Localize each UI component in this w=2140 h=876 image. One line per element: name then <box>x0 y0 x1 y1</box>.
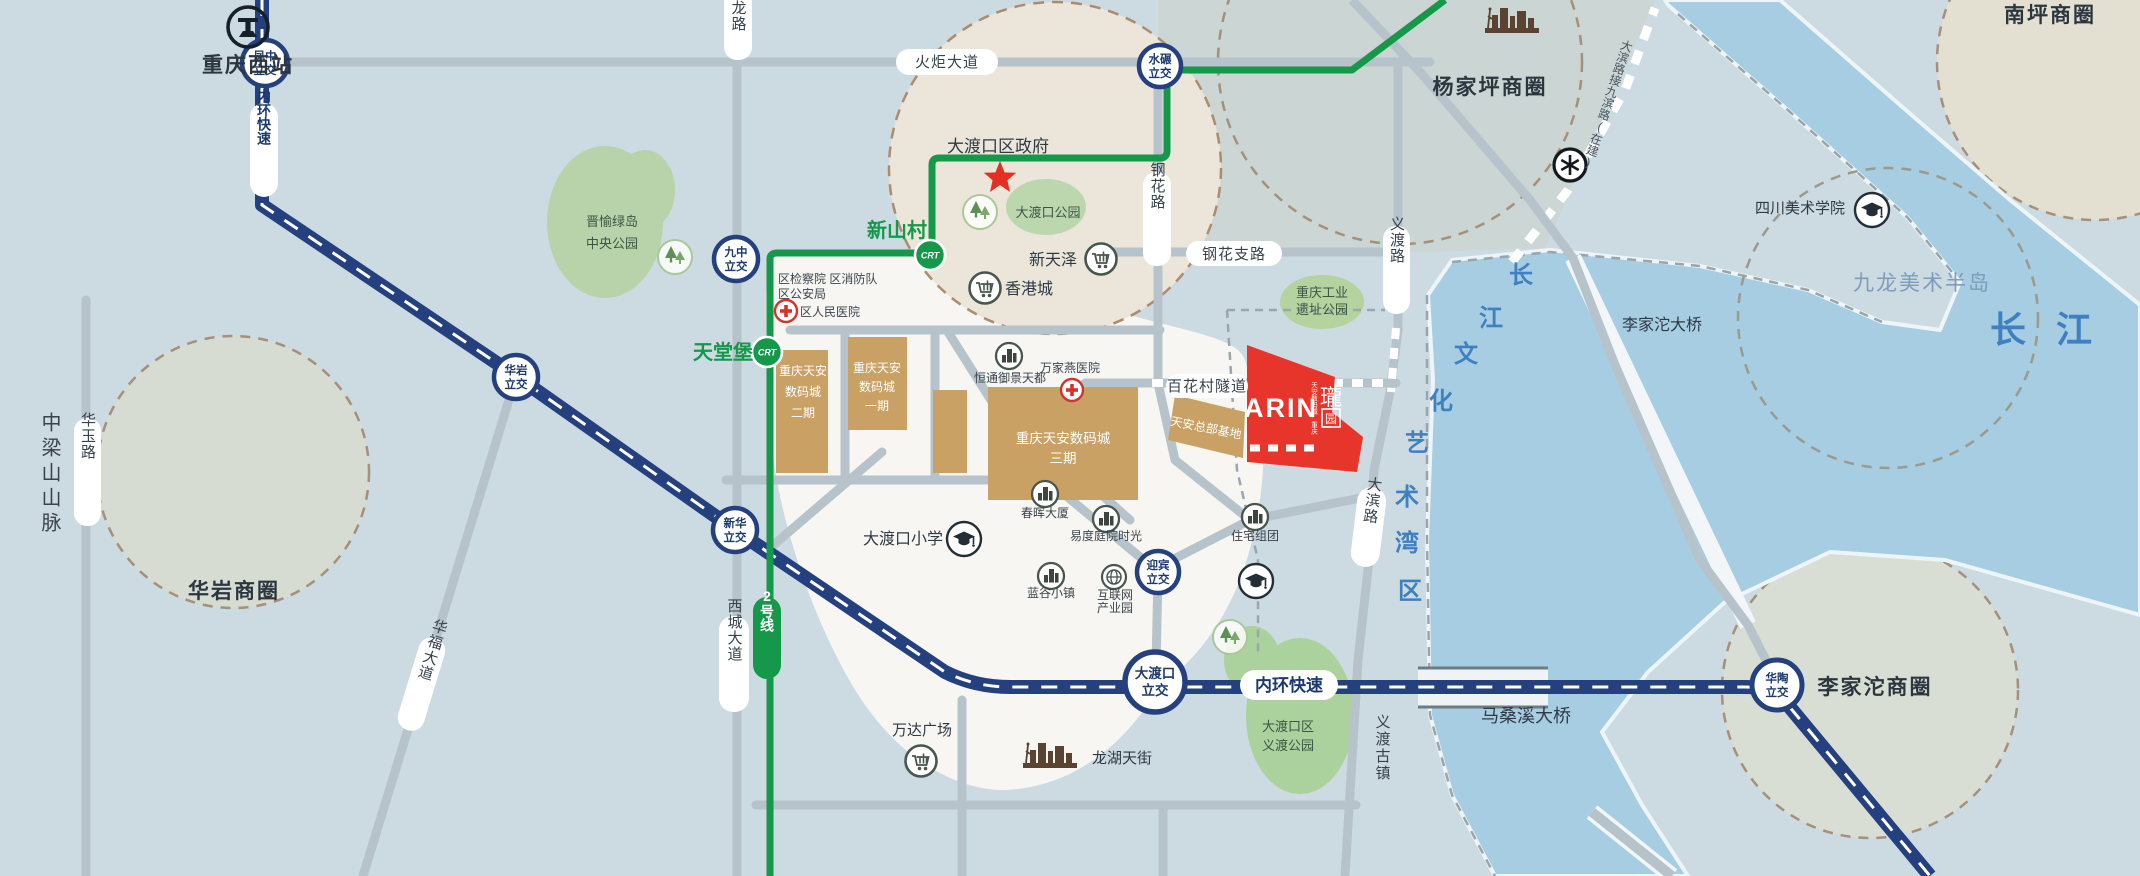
people-hospital-icon <box>775 300 797 322</box>
line2-badge-label: 2号线 <box>759 588 775 633</box>
svg-text:新华: 新华 <box>724 516 747 530</box>
svg-text:江: 江 <box>1479 305 1503 332</box>
wanjiayan-label: 万家燕医院 <box>1040 360 1100 375</box>
ganghua-branch-label: 钢花支路 <box>1202 246 1266 263</box>
hongkongcity-label: 香港城 <box>1005 280 1053 298</box>
yidu-ancient-town-label: 义渡古镇 <box>1374 714 1391 782</box>
sichuan-academy-label: 四川美术学院 <box>1755 199 1845 217</box>
wanjiayan-icon <box>1061 379 1083 401</box>
public-security-label: 区公安局 <box>778 286 826 301</box>
phase3-l1: 重庆天安数码城 <box>1016 431 1111 446</box>
jinyu-l1: 晋愉绿岛 <box>586 214 638 229</box>
sichuan-academy-icon <box>1855 193 1889 227</box>
tiantangbao-station-icon <box>752 337 782 367</box>
svg-text:区: 区 <box>1398 578 1422 605</box>
huoju-label: 火炬大道 <box>915 54 979 71</box>
nanping-label: 南坪商圈 <box>2004 3 2096 27</box>
xicheng-label: 西城大道 <box>726 598 743 662</box>
svg-text:立交: 立交 <box>1142 682 1170 698</box>
location-map: ARIN 天安数码城·重庆 瓏 园 重庆天安 数码城 二期 重庆天安 数码城 一… <box>0 0 2140 876</box>
internet-l2: 产业园 <box>1097 601 1133 615</box>
project-logo-cn: 瓏 <box>1320 385 1342 410</box>
yilong-label: 翼龙路 <box>730 0 747 32</box>
interchange-huayan: 华岩 立交 <box>494 355 538 399</box>
wanda-cart-icon <box>906 746 937 777</box>
interchange-xinhua: 新华 立交 <box>713 508 757 552</box>
hongkongcity-cart-icon <box>970 273 1001 304</box>
residence-icon <box>1242 504 1268 530</box>
yidu-time-label: 易度庭院时光 <box>1070 528 1142 543</box>
interchange-shuinian: 水碾 立交 <box>1139 45 1181 87</box>
inner-ring-v-label: 内环快速 <box>256 88 272 146</box>
xinshancun-label: 新山村 <box>867 218 927 242</box>
xintianze-label: 新天泽 <box>1029 251 1077 269</box>
yidu-park-trees-icon <box>1213 620 1247 654</box>
svg-text:九中: 九中 <box>724 245 748 259</box>
people-hospital-label: 区人民医院 <box>800 305 860 319</box>
internet-l1: 互联网 <box>1097 588 1133 602</box>
zhongliangshan-label: 中梁山山脉 <box>38 412 61 537</box>
svg-text:立交: 立交 <box>725 259 748 273</box>
chunhui-icon <box>1032 481 1058 507</box>
yidu-park-l1: 大渡口区 <box>1262 719 1314 734</box>
interchange-yingbin: 迎宾 立交 <box>1137 551 1179 593</box>
jiulong-peninsula-label: 九龙美术半岛 <box>1853 272 1991 295</box>
changjiang-label: 长 江 <box>1990 309 2102 350</box>
huayan-district-label: 华岩商圈 <box>188 579 280 603</box>
svg-text:立交: 立交 <box>1147 572 1170 586</box>
lijiatuo-district-label: 李家沱商圈 <box>1817 675 1933 699</box>
phase1-l2: 数码城 <box>859 379 895 394</box>
phase1-l3: 一期 <box>865 399 889 413</box>
lijiatuo-bridge-label: 李家沱大桥 <box>1622 316 1702 334</box>
phase2-l3: 二期 <box>791 406 815 420</box>
svg-text:华岩: 华岩 <box>505 363 528 377</box>
jinyu-l2: 中央公园 <box>586 236 638 251</box>
svg-text:华陶: 华陶 <box>1766 671 1789 685</box>
phase2-l1: 重庆天安 <box>779 363 827 378</box>
longhu-label: 龙湖天街 <box>1092 750 1152 767</box>
project-logo-seal: 园 <box>1325 412 1337 426</box>
svg-text:立交: 立交 <box>1766 685 1789 699</box>
svg-text:湾: 湾 <box>1395 529 1419 557</box>
interchange-dadukou: 大渡口 立交 <box>1125 652 1185 712</box>
yidu-park-l2: 义渡公园 <box>1262 738 1314 753</box>
hengtong-icon <box>996 343 1022 369</box>
phase2-l2: 数码城 <box>785 384 821 399</box>
tiantangbao-label: 天堂堡 <box>693 340 753 364</box>
langu-label: 蓝谷小镇 <box>1027 586 1075 600</box>
svg-text:立交: 立交 <box>505 377 528 391</box>
project-logo-latin: ARIN <box>1244 393 1318 423</box>
svg-text:大渡口: 大渡口 <box>1135 665 1176 681</box>
svg-text:艺: 艺 <box>1405 430 1429 457</box>
phase3-l2: 三期 <box>1050 451 1077 466</box>
interchange-huatao: 华陶 立交 <box>1752 660 1802 710</box>
svg-text:化: 化 <box>1429 387 1453 415</box>
ddk-park-label: 大渡口公园 <box>1015 205 1080 220</box>
residence-school-icon <box>1239 564 1273 598</box>
svg-text:文: 文 <box>1454 340 1479 368</box>
residence-label: 住宅组团 <box>1231 528 1279 543</box>
svg-text:水碾: 水碾 <box>1149 52 1172 66</box>
huayan-district-circle <box>97 336 369 608</box>
gov-label: 大渡口区政府 <box>947 137 1049 156</box>
xinshancun-station-icon <box>915 240 945 270</box>
chongqing-west-label: 重庆西站 <box>202 53 294 77</box>
svg-text:术: 术 <box>1395 484 1419 511</box>
procuratorate-label: 区检察院 区消防队 <box>778 271 877 286</box>
baihuacun-label: 百花村隧道 <box>1167 378 1247 395</box>
wanda-label: 万达广场 <box>892 722 952 739</box>
chunhui-label: 春晖大厦 <box>1021 506 1069 520</box>
yidu-label: 义渡路 <box>1388 216 1405 264</box>
industrial-park-l1: 重庆工业 <box>1296 285 1348 300</box>
svg-text:迎宾: 迎宾 <box>1147 558 1170 572</box>
map-canvas: ARIN 天安数码城·重庆 瓏 园 重庆天安 数码城 二期 重庆天安 数码城 一… <box>0 0 2140 876</box>
masangxi-bridge-label: 马桑溪大桥 <box>1481 706 1571 726</box>
huayu-label: 华玉路 <box>79 412 96 460</box>
building-mid-block <box>933 390 967 473</box>
svg-text:立交: 立交 <box>1149 66 1172 80</box>
xintianze-cart-icon <box>1086 244 1117 275</box>
ddk-primary-label: 大渡口小学 <box>863 530 943 548</box>
interchange-jiuzhong: 九中 立交 <box>714 237 758 281</box>
ddk-primary-icon <box>947 522 981 556</box>
inner-ring-h-label: 内环快速 <box>1255 675 1323 695</box>
industrial-park-l2: 遗址公园 <box>1296 302 1348 317</box>
internet-park-icon <box>1102 565 1126 589</box>
phase1-l1: 重庆天安 <box>853 360 901 375</box>
yangjiaping-label: 杨家坪商圈 <box>1433 75 1548 99</box>
ddk-park-trees-icon <box>963 195 997 229</box>
svg-text:长: 长 <box>1509 262 1534 289</box>
svg-text:立交: 立交 <box>724 530 747 544</box>
jinyu-trees-icon <box>658 240 692 274</box>
ganghua-label: 钢花路 <box>1149 162 1166 210</box>
hengtong-label: 恒通御景天都 <box>974 370 1046 385</box>
